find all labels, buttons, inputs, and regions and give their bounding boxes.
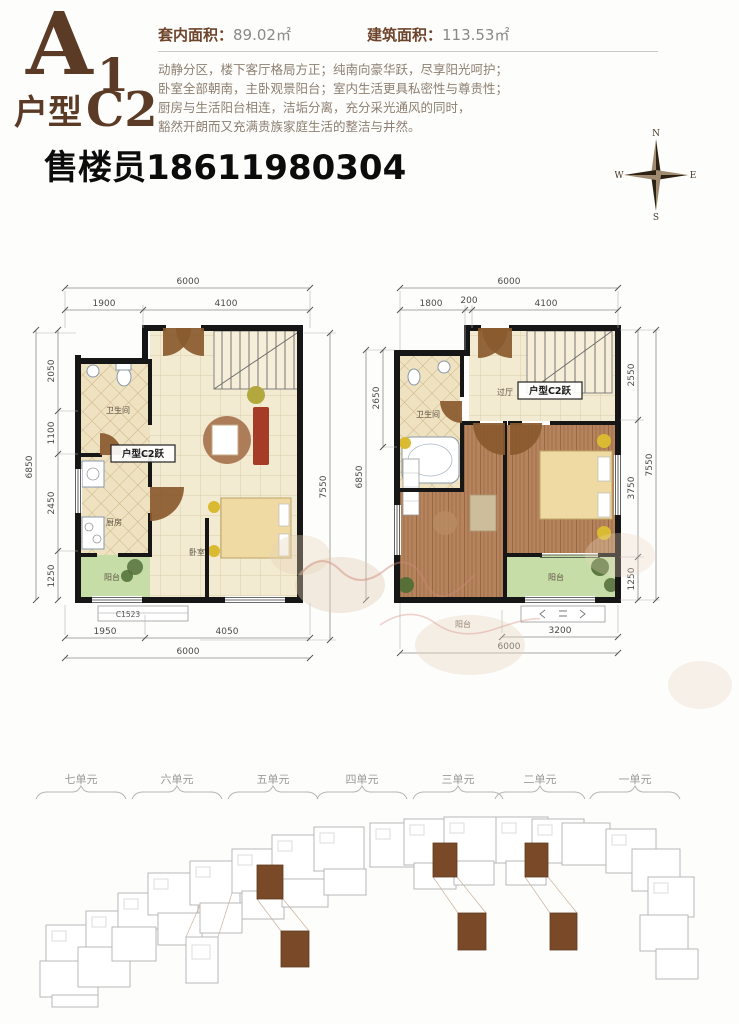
copy-line: 卧室全部朝南，主卧观景阳台；室内生活更具私密性与尊贵性； <box>158 79 508 98</box>
highlighted-unit <box>257 865 283 899</box>
svg-text:6000: 6000 <box>498 277 521 287</box>
unit-label-5: 五单元 <box>257 773 290 786</box>
bathroom-label: 卫生间 <box>106 405 130 415</box>
staircase <box>214 331 300 389</box>
svg-text:2050: 2050 <box>47 359 57 382</box>
highlighted-unit <box>525 843 548 877</box>
unit-tag: 户型C2跃 <box>518 382 582 399</box>
svg-text:1800: 1800 <box>420 299 443 309</box>
plan-code-letter: A <box>26 2 93 88</box>
unit-label-2: 二单元 <box>524 773 557 786</box>
unit-tag: 户型C2跃 <box>111 445 175 462</box>
compass-rose-icon: N E S W <box>615 128 697 222</box>
svg-text:6000: 6000 <box>177 277 200 287</box>
copy-line: 动静分区，楼下客厅格局方正；纯南向豪华跃，尽享阳光呵护； <box>158 60 508 79</box>
svg-text:6850: 6850 <box>25 455 35 478</box>
svg-text:2650: 2650 <box>372 386 382 409</box>
unit-label-3: 三单元 <box>442 773 475 786</box>
svg-text:2450: 2450 <box>47 491 57 514</box>
svg-text:1900: 1900 <box>93 299 116 309</box>
unit-callout <box>281 931 309 967</box>
bathroom-label: 卫生间 <box>416 409 440 419</box>
floor-plan-lower: C1523 卫生间 厨房 阳台 卧室 户型C2跃 6000 1900 4100 … <box>25 277 336 661</box>
svg-text:7550: 7550 <box>645 453 655 476</box>
compass-star <box>624 139 688 211</box>
interior-area-value: 89.02㎡ <box>233 26 291 44</box>
interior-area-label: 套内面积： <box>158 26 233 44</box>
bedroom-label: 卧室 <box>189 547 205 557</box>
copy-line: 豁然开朗而又充满贵族家庭生活的整洁与井然。 <box>158 117 508 136</box>
flyer-page: { "header": { "code_main": "A", "code_ma… <box>0 0 739 1024</box>
svg-text:3200: 3200 <box>549 626 572 636</box>
svg-text:3750: 3750 <box>627 476 637 499</box>
kitchen-label: 厨房 <box>106 517 122 527</box>
hallway-label: 过厅 <box>497 387 513 397</box>
svg-text:户型C2跃: 户型C2跃 <box>121 448 165 460</box>
unit-label-7: 七单元 <box>65 773 98 786</box>
copy-line: 厨房与生活阳台相连，洁垢分离，充分采光通风的同时， <box>158 98 508 117</box>
balcony-label: 阳台 <box>104 572 120 582</box>
plant <box>121 570 133 582</box>
svg-text:1100: 1100 <box>47 421 57 444</box>
svg-text:4100: 4100 <box>535 299 558 309</box>
svg-text:1250: 1250 <box>47 564 57 587</box>
gross-area-value: 113.53㎡ <box>442 26 510 44</box>
marketing-copy: 动静分区，楼下客厅格局方正；纯南向豪华跃，尽享阳光呵护； 卧室全部朝南，主卧观景… <box>158 60 508 136</box>
compass-north-label: N <box>652 129 660 139</box>
bay-window <box>98 606 188 621</box>
highlighted-unit <box>433 843 457 877</box>
compass-east-label: E <box>690 171 697 181</box>
floor-plan-upper: 卫生间 过厅 阳台 阳台 户型C2跃 6000 1800 200 4100 68… <box>355 277 660 656</box>
unit-label-6: 六单元 <box>161 773 194 786</box>
balcony-label: 阳台 <box>548 572 564 582</box>
svg-text:6000: 6000 <box>177 647 200 657</box>
window-code-label: C1523 <box>116 610 141 619</box>
svg-text:6850: 6850 <box>355 465 365 488</box>
floor-plans-drawing: C1523 卫生间 厨房 阳台 卧室 户型C2跃 6000 1900 4100 … <box>0 255 739 765</box>
svg-text:7550: 7550 <box>319 475 329 498</box>
plant <box>398 577 414 593</box>
area-summary: 套内面积：89.02㎡建筑面积：113.53㎡ <box>158 24 513 45</box>
plan-type-label: 户型 <box>14 96 82 130</box>
plan-type-code: C2 <box>86 86 158 134</box>
site-plan-strip: 七单元 六单元 五单元 四单元 三单元 二单元 一单元 <box>0 765 739 1024</box>
svg-text:4100: 4100 <box>215 299 238 309</box>
unit-label-4: 四单元 <box>346 773 379 786</box>
unit-callout <box>550 913 577 950</box>
compass-south-label: S <box>653 213 659 222</box>
unit-callout <box>458 913 486 950</box>
svg-text:2550: 2550 <box>627 363 637 386</box>
unit-braces <box>36 786 680 799</box>
gross-area-label: 建筑面积： <box>367 26 442 44</box>
svg-text:4050: 4050 <box>216 627 239 637</box>
header-divider <box>158 51 658 52</box>
svg-text:户型C2跃: 户型C2跃 <box>528 385 572 397</box>
compass-west-label: W <box>615 171 624 181</box>
svg-text:1950: 1950 <box>94 627 117 637</box>
unit-labels: 七单元 六单元 五单元 四单元 三单元 二单元 一单元 <box>65 773 652 786</box>
unit-callout-outline <box>186 937 218 983</box>
unit-label-1: 一单元 <box>619 773 652 786</box>
sales-agent-phone: 售楼员18611980304 <box>44 140 406 189</box>
svg-text:200: 200 <box>460 296 477 306</box>
building-outlines <box>40 817 698 1007</box>
